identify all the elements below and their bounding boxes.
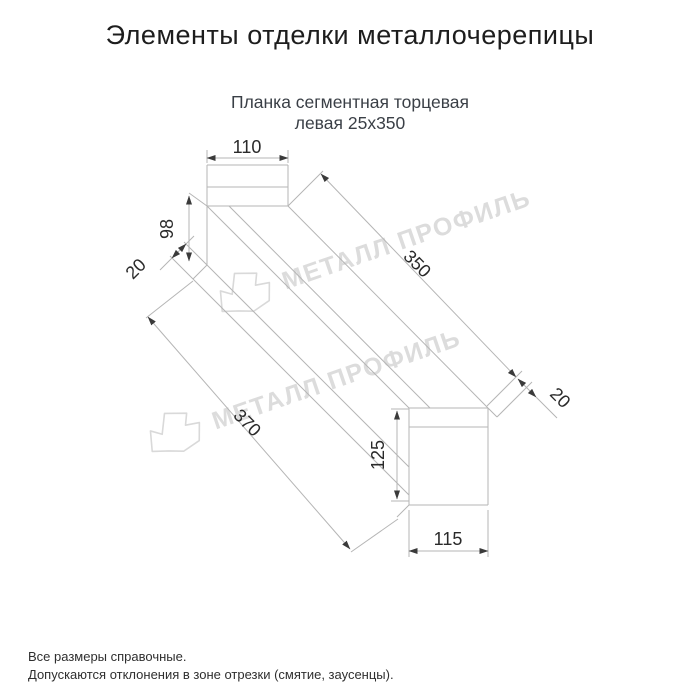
metall-profil-logo-icon [142,404,207,461]
dim-end-height-label: 125 [368,440,388,470]
technical-drawing: МЕТАЛЛ ПРОФИЛЬ МЕТАЛЛ ПРОФИЛЬ [0,0,700,700]
dim-cap-width-label: 110 [233,137,262,157]
dim-top-hem-label: 20 [122,255,150,283]
dim-end-width-label: 115 [434,529,463,549]
dim-web-height-label: 98 [157,219,177,239]
dim-bottom-hem-label: 20 [546,384,574,412]
drawing-page: Элементы отделки металлочерепицы Планка … [0,0,700,700]
metall-profil-logo-icon [212,264,277,321]
footer-note-line1: Все размеры справочные. [28,648,394,666]
footer-note-line2: Допускаются отклонения в зоне отрезки (с… [28,666,394,684]
watermark-text: МЕТАЛЛ ПРОФИЛЬ [278,184,534,296]
watermarks: МЕТАЛЛ ПРОФИЛЬ МЕТАЛЛ ПРОФИЛЬ [142,174,536,461]
footer-notes: Все размеры справочные. Допускаются откл… [28,648,394,684]
watermark-upper: МЕТАЛЛ ПРОФИЛЬ [212,174,536,321]
